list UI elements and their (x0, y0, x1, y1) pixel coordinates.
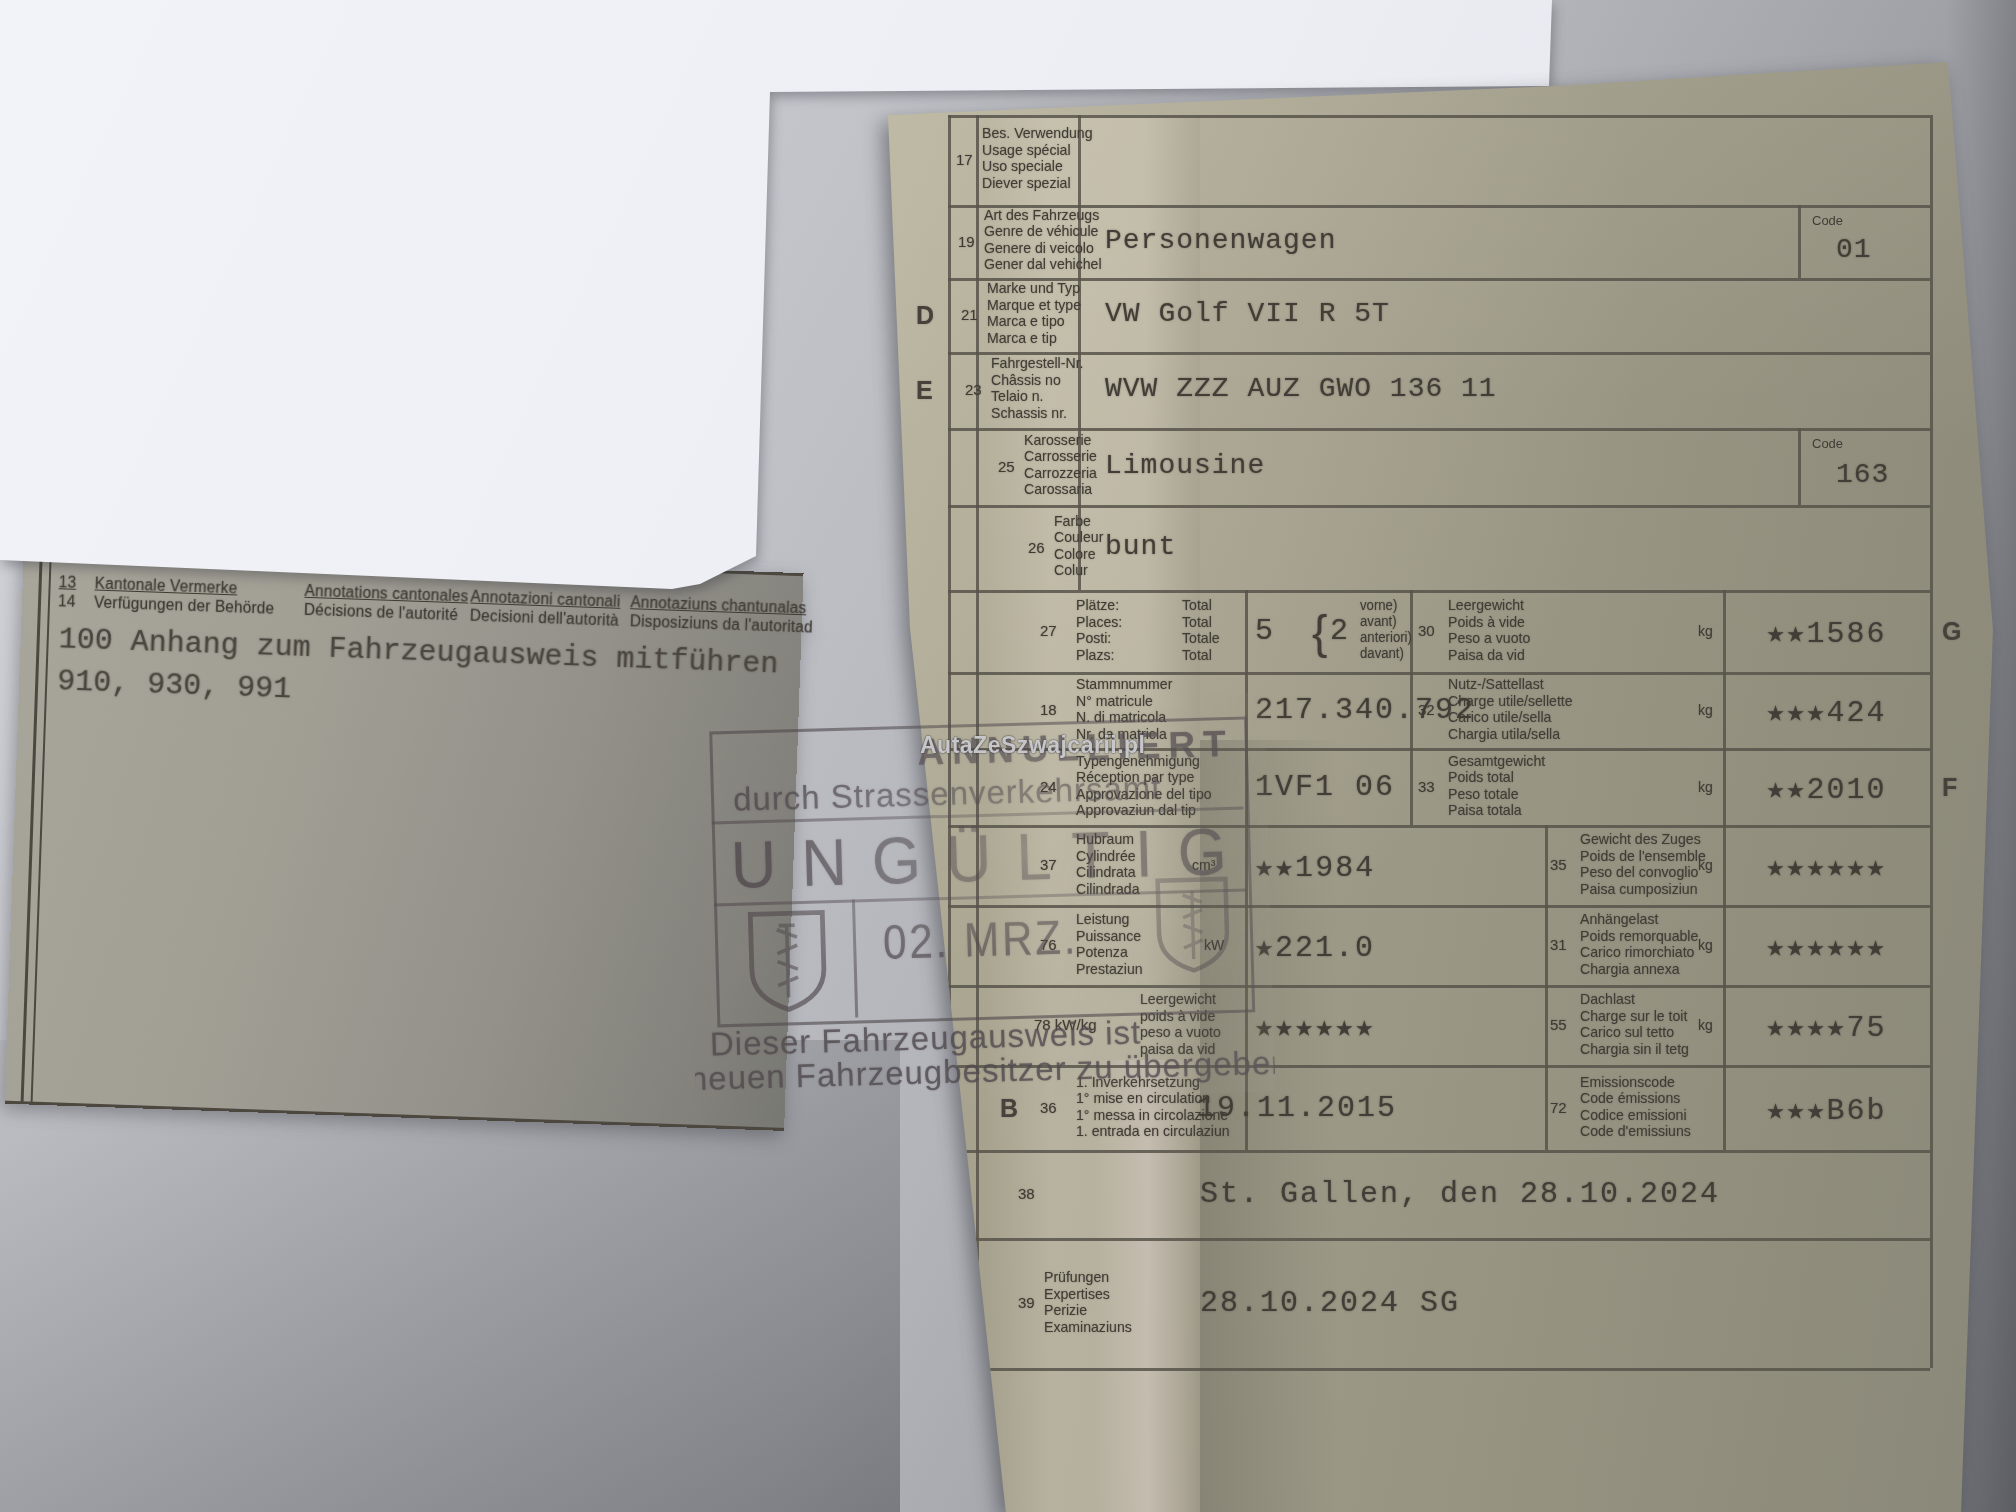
field-number: 55 (1550, 1016, 1567, 1033)
seat-paren-label: anteriori) (1360, 629, 1412, 646)
field-label: Paisa da vid (1448, 647, 1525, 664)
field-label: Telaio n. (991, 388, 1044, 405)
header-de-2: Verfügungen der Behörde (94, 593, 275, 616)
field-label: Gewicht des Zuges (1580, 831, 1701, 848)
field-value: 217.340.792 (1255, 693, 1475, 727)
field-label: Chargia utila/sella (1448, 726, 1560, 743)
field-label: Charge utile/sellette (1448, 693, 1573, 710)
field-number: 21 (961, 306, 978, 323)
code-column-border (1798, 205, 1801, 278)
field-number: 17 (956, 151, 973, 168)
field-label: Marca e tipo (987, 313, 1065, 330)
field-value: ★★★★★★ (1730, 848, 1923, 885)
field-value: ★★★B6b (1730, 1091, 1923, 1128)
field-number: 30 (1418, 622, 1435, 639)
field-label: Karosserie (1024, 432, 1091, 449)
field-label: Chargia sin il tetg (1580, 1041, 1689, 1058)
field-label: Gener dal vehichel (984, 256, 1102, 273)
weight-letter: G (1942, 617, 1961, 646)
photo-watermark: AutaZeSzwajcarii.pl (920, 732, 1146, 759)
field-label: Examinaziuns (1044, 1319, 1132, 1336)
field-label: Schassis nr. (991, 405, 1067, 422)
table-row-border (948, 590, 1930, 593)
field-label: Poids de l'ensemble (1580, 848, 1706, 865)
field-number: 26 (1028, 539, 1045, 556)
field-label: Codice emissioni (1580, 1107, 1687, 1124)
field-number: 39 (1018, 1294, 1035, 1311)
field-label: Châssis no (991, 372, 1061, 389)
field-number: 36 (1040, 1099, 1057, 1116)
field-label: Stammnummer (1076, 676, 1172, 693)
field-label: Places: (1076, 614, 1122, 631)
field-14-number: 14 (58, 592, 76, 610)
code-column-border (1798, 428, 1801, 505)
field-value: bunt (1105, 531, 1176, 562)
field-label: Art des Fahrzeugs (984, 207, 1099, 224)
field-label: Colur (1054, 562, 1088, 579)
field-label: Emissionscode (1580, 1074, 1675, 1091)
field-value: VW Golf VII R 5T (1105, 298, 1390, 329)
field-label: Dachlast (1580, 991, 1635, 1008)
header-rm-2: Disposiziuns da l'autoritad (629, 612, 813, 635)
field-label: Couleur (1054, 529, 1103, 546)
left-document: 13 14 Kantonale VermerkeVerfügungen der … (5, 546, 804, 1131)
field-value: St. Gallen, den 28.10.2024 (1200, 1177, 1720, 1211)
field-unit: kg (1698, 623, 1713, 639)
field-label: Peso a vuoto (1448, 630, 1530, 647)
field-label: Genere di veicolo (984, 240, 1094, 257)
field-value: ★★★424 (1730, 693, 1923, 730)
table-row-border (948, 1368, 1930, 1371)
field-label: Poids total (1448, 769, 1514, 786)
field-label: Bes. Verwendung (982, 125, 1093, 142)
field-value: 19.11.2015 (1197, 1091, 1397, 1125)
field-number: 25 (998, 458, 1015, 475)
field-label: Plazs: (1076, 647, 1114, 664)
field-label: Poids à vide (1448, 614, 1525, 631)
field-label: Charge sur le toit (1580, 1008, 1687, 1025)
field-number: 72 (1550, 1099, 1567, 1116)
field-value: ★★1984 (1255, 848, 1375, 885)
field-unit: kg (1698, 937, 1713, 953)
field-unit: kg (1698, 702, 1713, 718)
field-unit: kg (1698, 857, 1713, 873)
field-label: Plätze: (1076, 597, 1119, 614)
field-number: 35 (1550, 856, 1567, 873)
seat-paren-label: vorne) (1360, 597, 1397, 614)
field-label: Prüfungen (1044, 1269, 1109, 1286)
field-label: Carico rimorchiato (1580, 944, 1694, 961)
field-label-total: Totale (1182, 630, 1220, 647)
field-label: Diever spezial (982, 175, 1071, 192)
field-value: Personenwagen (1105, 225, 1336, 256)
field-label: Genre de véhicule (984, 223, 1098, 240)
field-label: Paisa cumposiziun (1580, 881, 1698, 898)
field-unit: kg (1698, 1017, 1713, 1033)
field-value-front-seats: 2 (1330, 614, 1350, 648)
field-value: ★★1586 (1730, 614, 1923, 651)
field-label: Paisa totala (1448, 802, 1522, 819)
header-it-2: Decisioni dell'autorità (470, 607, 620, 629)
left-doc-border-inner (31, 550, 52, 1102)
table-divider-right-labels-b (1545, 825, 1548, 1150)
field-label: Carrozzeria (1024, 465, 1097, 482)
header-fr-2: Décisions de l'autorité (304, 601, 459, 623)
field-label: Peso totale (1448, 786, 1519, 803)
field-label: Nutz-/Sattellast (1448, 676, 1544, 693)
field-label: Marke und Typ (987, 280, 1080, 297)
field-number: 27 (1040, 622, 1057, 639)
field-label: Carrosserie (1024, 448, 1097, 465)
code-value: 163 (1836, 459, 1889, 490)
field-label: Carossaria (1024, 481, 1092, 498)
field-label: Carico utile/sella (1448, 709, 1551, 726)
field-label: Colore (1054, 546, 1096, 563)
field-label: Farbe (1054, 513, 1091, 530)
field-label: Leergewicht (1448, 597, 1524, 614)
table-row-border (948, 278, 1930, 281)
table-row-border (948, 1238, 1930, 1241)
field-value: 28.10.2024 SG (1200, 1286, 1460, 1320)
field-value: ★★★★★★ (1730, 928, 1923, 965)
field-label: Carico sul tetto (1580, 1024, 1674, 1041)
table-row-border (948, 428, 1930, 431)
field-label-total: Total (1182, 597, 1212, 614)
field-label: Usage spécial (982, 142, 1071, 159)
field-label: Marca e tip (987, 330, 1057, 347)
section-letter: E (916, 376, 933, 405)
field-label: Anhängelast (1580, 911, 1658, 928)
table-divider-right-values (1723, 590, 1726, 1150)
field-value: ★★★★75 (1730, 1008, 1923, 1045)
table-row-border (948, 505, 1930, 508)
field-label: Fahrgestell-Nr. (991, 355, 1083, 372)
seat-paren-label: avant) (1360, 613, 1397, 630)
field-label: Posti: (1076, 630, 1111, 647)
field-label-total: Total (1182, 647, 1212, 664)
code-header-label: Code (1812, 213, 1843, 228)
field-number: 23 (965, 381, 982, 398)
field-label-total: Total (1182, 614, 1212, 631)
field-label: Chargia annexa (1580, 961, 1680, 978)
field-label: Uso speciale (982, 158, 1063, 175)
field-label: Poids remorquable (1580, 928, 1698, 945)
table-row-border (948, 115, 1930, 118)
field-label: Code d'emissiuns (1580, 1123, 1691, 1140)
table-border-right (1930, 115, 1933, 1368)
field-label: Perizie (1044, 1302, 1087, 1319)
seat-brace: { (1312, 605, 1327, 659)
field-value: 1VF1 06 (1255, 770, 1395, 804)
section-letter: D (916, 301, 934, 330)
field-label: Peso del convoglio (1580, 864, 1698, 881)
table-row-border (948, 672, 1930, 675)
field-label: Marque et type (987, 297, 1081, 314)
cantonal-note-line2: 910, 930, 991 (57, 664, 292, 706)
field-label: Gesamtgewicht (1448, 753, 1545, 770)
field-label: 1. entrada en circulaziun (1076, 1123, 1230, 1140)
weight-letter: F (1942, 773, 1957, 802)
field-unit: kg (1698, 779, 1713, 795)
field-number: 33 (1418, 778, 1435, 795)
field-number: 19 (958, 233, 975, 250)
code-header-label: Code (1812, 436, 1843, 451)
field-value: WVW ZZZ AUZ GWO 136 11 (1105, 373, 1497, 404)
header-de-1: Kantonale Vermerke (94, 574, 237, 596)
table-row-border (948, 1150, 1930, 1153)
field-value: ★221.0 (1255, 928, 1375, 965)
field-label: Expertises (1044, 1286, 1110, 1303)
field-number: 38 (1018, 1185, 1035, 1202)
table-row-border (948, 352, 1930, 355)
field-number: 32 (1418, 701, 1435, 718)
field-value: 5 (1255, 614, 1275, 648)
field-13-number: 13 (58, 573, 76, 591)
code-value: 01 (1836, 234, 1872, 265)
seat-paren-label: davant) (1360, 645, 1404, 662)
field-number: 31 (1550, 936, 1567, 953)
field-value: Limousine (1105, 450, 1265, 481)
field-label: Code émissions (1580, 1090, 1680, 1107)
field-value: ★★2010 (1730, 770, 1923, 807)
